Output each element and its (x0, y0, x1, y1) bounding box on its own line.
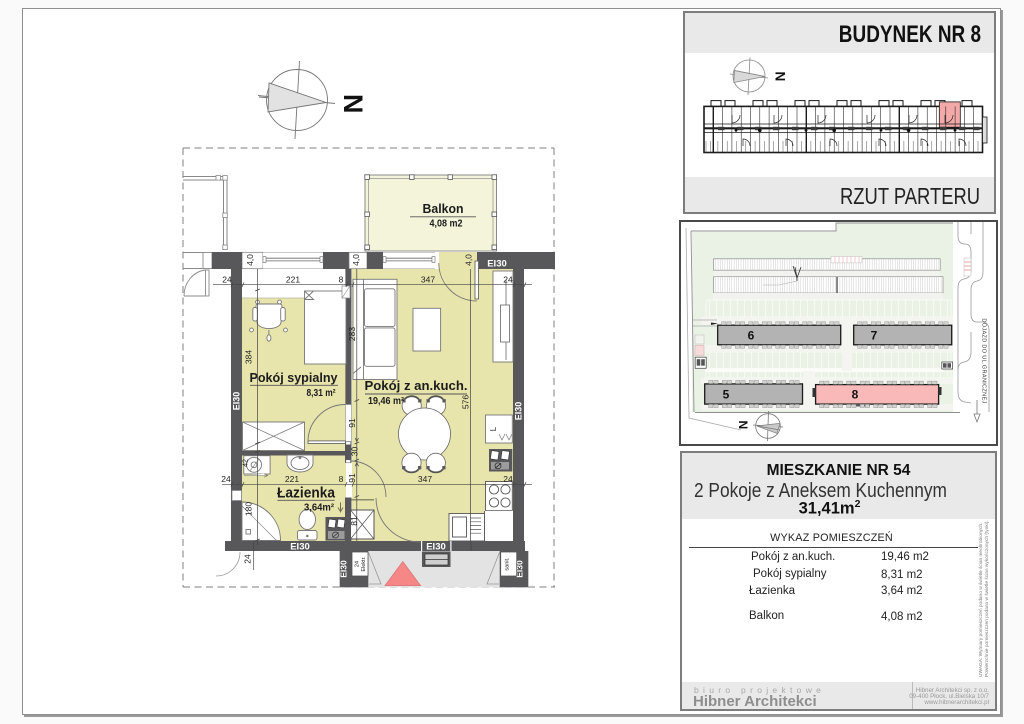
svg-text:Łazienka: Łazienka (277, 485, 336, 502)
svg-text:347: 347 (418, 474, 432, 484)
svg-text:81: 81 (349, 516, 359, 526)
svg-text:Pokój z an.kuch.: Pokój z an.kuch. (365, 378, 468, 393)
svg-text:N: N (773, 72, 788, 82)
svg-text:EI30: EI30 (232, 392, 242, 411)
svg-text:sanit.: sanit. (505, 557, 511, 571)
svg-text:384: 384 (244, 350, 254, 364)
svg-text:7: 7 (871, 329, 878, 343)
svg-text:4,0: 4,0 (245, 254, 255, 266)
svg-text:Pokój sypialny: Pokój sypialny (250, 371, 338, 385)
svg-text:N: N (338, 94, 368, 114)
svg-text:42: 42 (243, 459, 250, 467)
svg-text:EI30: EI30 (514, 402, 524, 421)
svg-text:8: 8 (339, 474, 344, 484)
svg-text:19,46 m²: 19,46 m² (368, 396, 405, 407)
svg-text:EI30: EI30 (290, 542, 310, 553)
svg-text:221: 221 (285, 474, 299, 484)
svg-text:EI30: EI30 (426, 542, 446, 553)
svg-text:180: 180 (244, 502, 254, 516)
svg-text:283: 283 (347, 327, 357, 341)
svg-text:4,0: 4,0 (351, 254, 361, 266)
svg-text:N: N (736, 421, 750, 430)
svg-text:347: 347 (421, 275, 435, 285)
svg-text:Balkon: Balkon (423, 202, 464, 216)
svg-text:3,64m²: 3,64m² (304, 502, 334, 514)
svg-text:Elektr.: Elektr. (361, 556, 367, 572)
svg-text:8: 8 (852, 388, 859, 402)
svg-text:91: 91 (347, 418, 357, 428)
svg-text:EI30: EI30 (339, 560, 349, 578)
svg-text:24: 24 (503, 275, 513, 285)
svg-text:576: 576 (460, 395, 470, 409)
svg-text:4,0: 4,0 (464, 254, 474, 266)
svg-text:8,31 m²: 8,31 m² (307, 387, 336, 399)
svg-text:221: 221 (286, 275, 300, 285)
svg-text:L: L (489, 426, 498, 431)
svg-text:24: 24 (222, 275, 232, 285)
svg-text:6: 6 (748, 329, 755, 343)
svg-text:EI30: EI30 (487, 259, 507, 270)
svg-text:30: 30 (350, 447, 360, 457)
svg-text:4,08 m2: 4,08 m2 (430, 219, 463, 230)
svg-text:24: 24 (355, 561, 361, 567)
svg-text:8: 8 (339, 275, 344, 285)
svg-text:24: 24 (243, 554, 253, 564)
svg-text:91: 91 (347, 473, 357, 483)
svg-text:5: 5 (723, 388, 730, 402)
svg-text:24: 24 (503, 474, 513, 484)
svg-text:DOJAZD DO UL.GRANICZNEJ: DOJAZD DO UL.GRANICZNEJ (981, 318, 987, 403)
svg-text:24: 24 (221, 474, 231, 484)
